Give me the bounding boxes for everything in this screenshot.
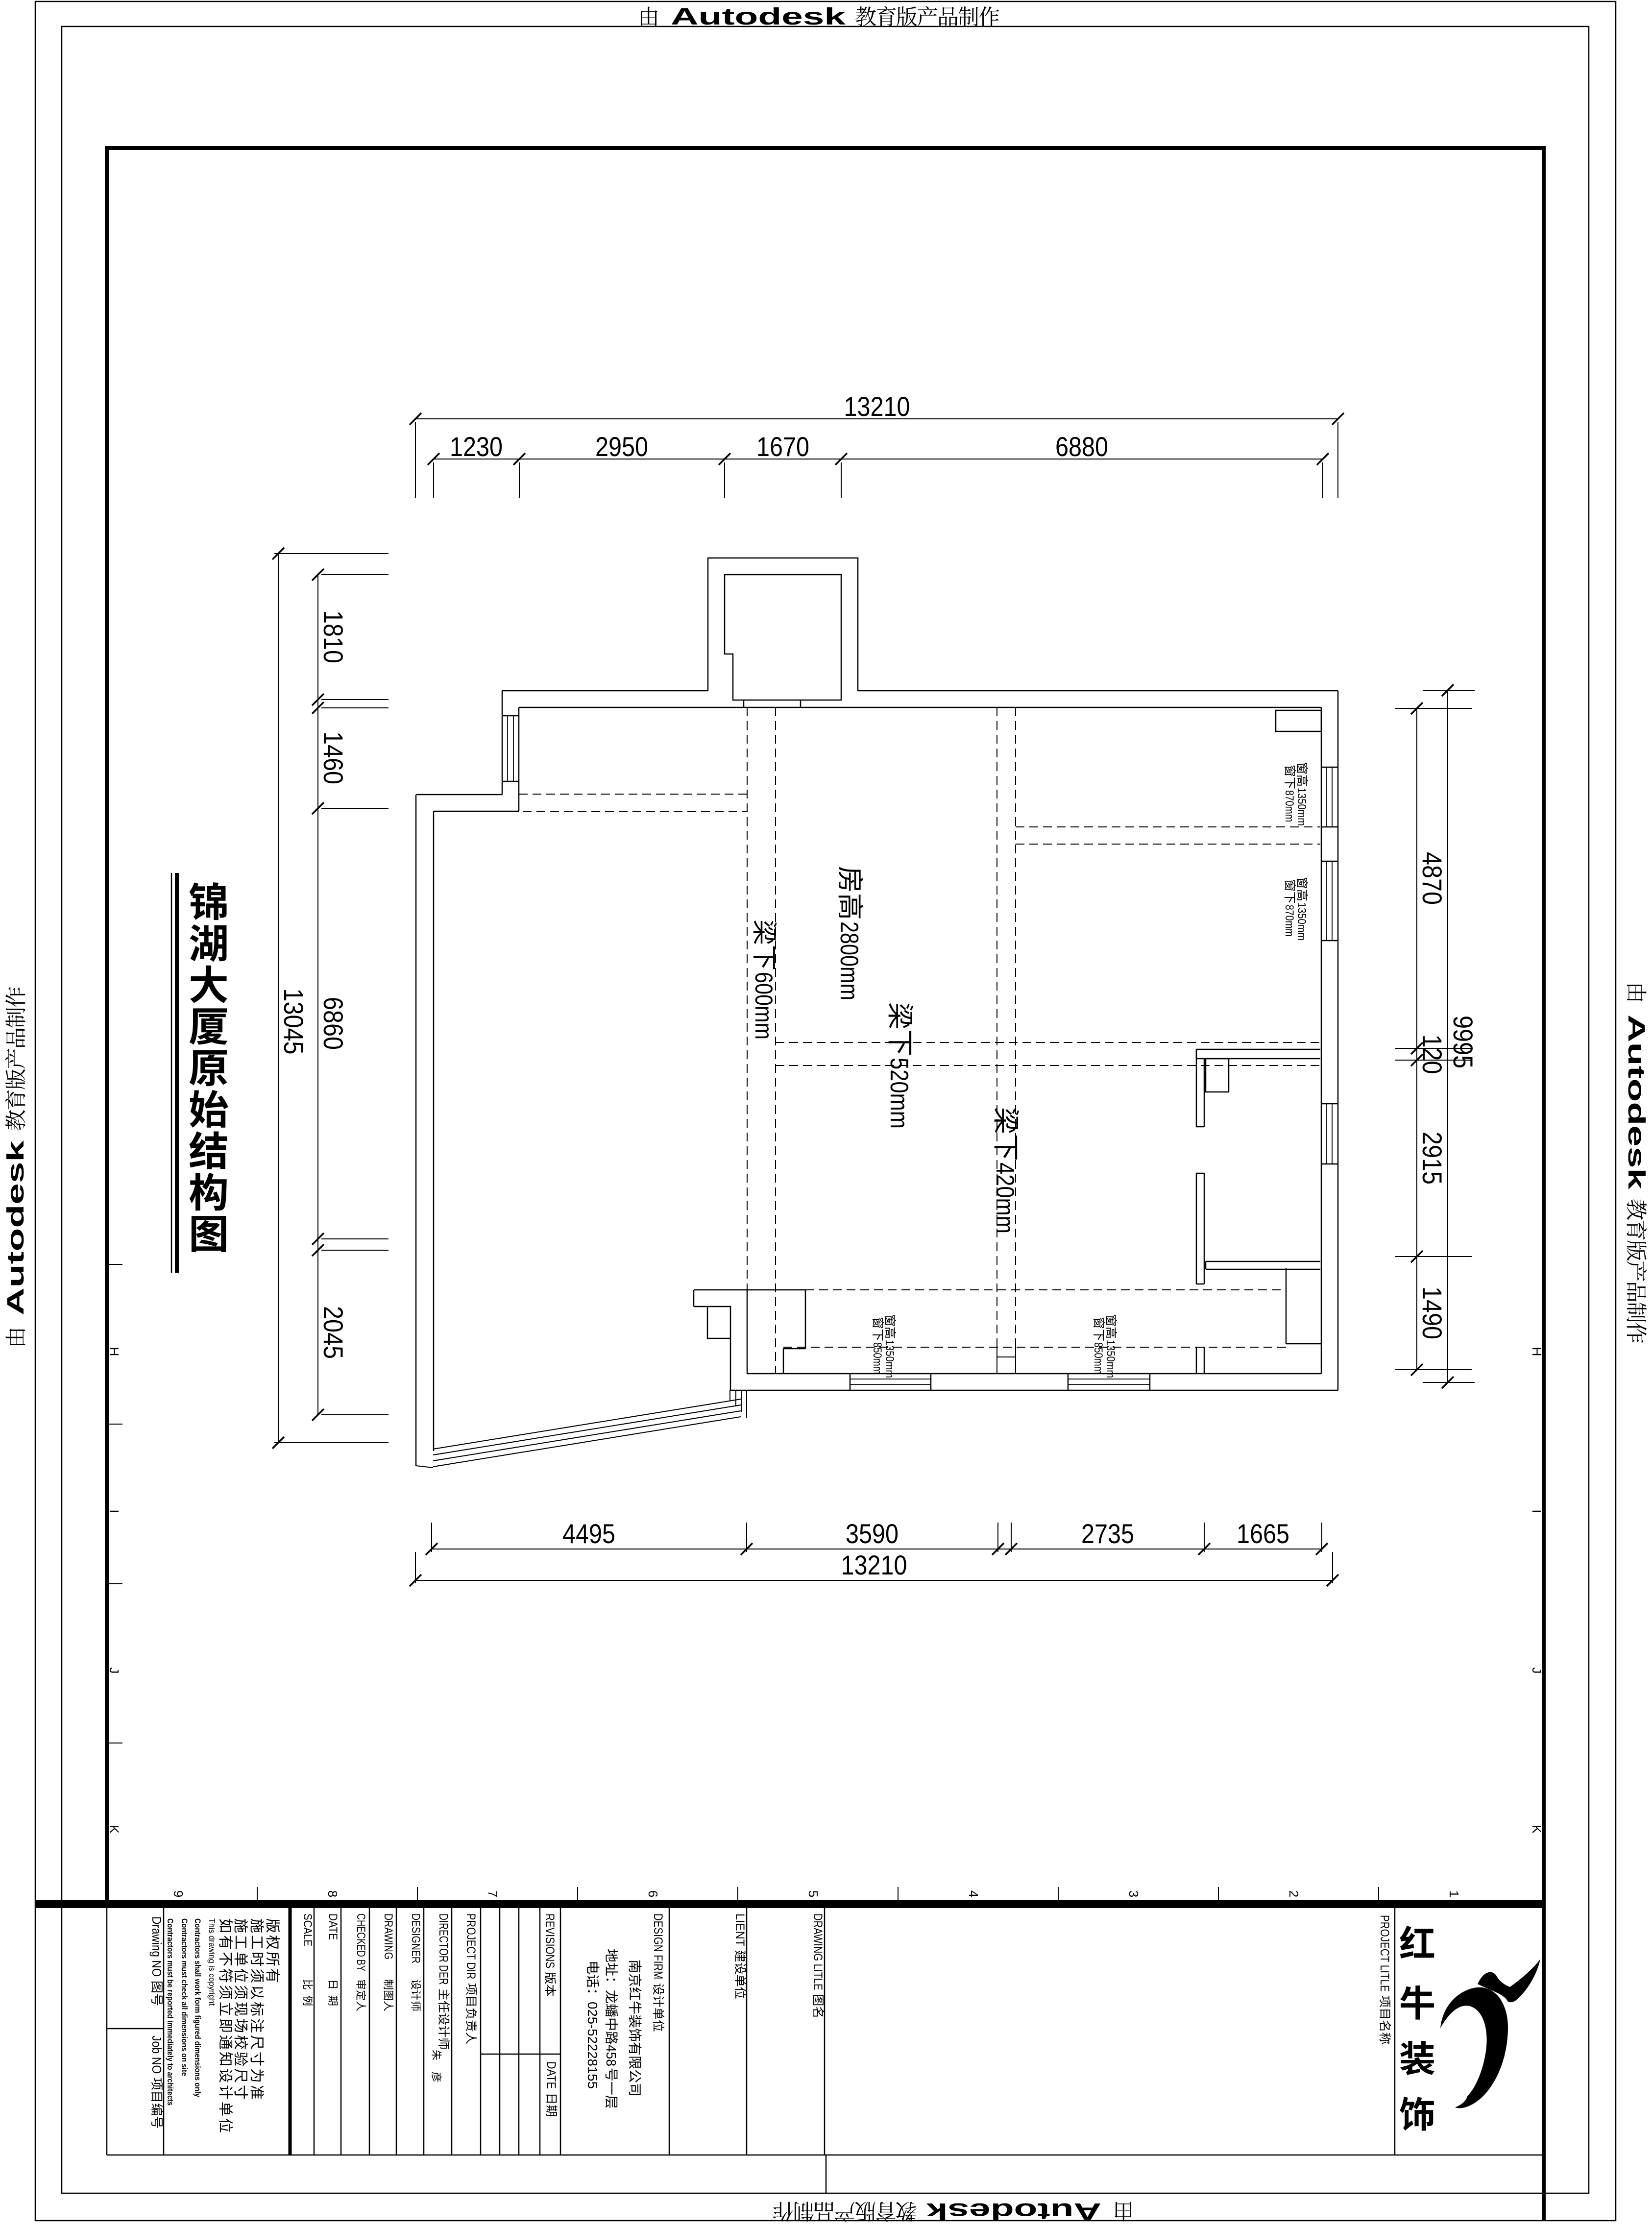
- svg-text:SCALE: SCALE: [301, 1913, 314, 1946]
- svg-text:520mm: 520mm: [885, 1058, 913, 1129]
- svg-text:Contractors must be reported i: Contractors must be reported immediately…: [166, 1918, 175, 2106]
- svg-text:J: J: [1530, 1668, 1544, 1674]
- svg-text:DESIGNER: DESIGNER: [409, 1913, 422, 1963]
- svg-text:1490: 1490: [1417, 1286, 1448, 1339]
- svg-text:K: K: [107, 1825, 121, 1834]
- svg-text:1350mm: 1350mm: [1295, 902, 1308, 941]
- svg-text:K: K: [1530, 1825, 1544, 1834]
- svg-text:7: 7: [486, 1890, 500, 1897]
- svg-text:2950: 2950: [595, 431, 648, 462]
- svg-text:CHECKED BY: CHECKED BY: [354, 1913, 367, 1971]
- svg-text:2800mm: 2800mm: [835, 921, 863, 1000]
- svg-text:850mm: 850mm: [871, 1342, 884, 1374]
- svg-text:Drawing NO: Drawing NO: [149, 1916, 164, 1977]
- svg-text:This drawing is copyright: This drawing is copyright: [207, 1918, 217, 2006]
- svg-text:6880: 6880: [1055, 431, 1108, 462]
- svg-text:Contractors must check all dim: Contractors must check all dimensions on…: [180, 1918, 189, 2076]
- svg-text:REVISIONS: REVISIONS: [543, 1913, 557, 1968]
- svg-text:2915: 2915: [1417, 1132, 1448, 1185]
- svg-text:1670: 1670: [756, 431, 809, 462]
- svg-text:3: 3: [1126, 1890, 1141, 1897]
- svg-text:4870: 4870: [1417, 852, 1448, 905]
- svg-text:Contractors shall work form fi: Contractors shall work form figured dime…: [193, 1918, 202, 2097]
- svg-text:J: J: [107, 1668, 121, 1674]
- svg-text:PROJECT DIR: PROJECT DIR: [464, 1913, 478, 1979]
- svg-text:9: 9: [171, 1890, 186, 1897]
- svg-text:DESIGN FIRM: DESIGN FIRM: [651, 1913, 665, 1979]
- svg-text:DRAWING: DRAWING: [382, 1913, 395, 1960]
- svg-text:4495: 4495: [562, 1518, 615, 1549]
- svg-text:120: 120: [1417, 1035, 1448, 1074]
- svg-text:DATE: DATE: [544, 2061, 558, 2089]
- svg-text:600mm: 600mm: [750, 972, 777, 1040]
- svg-text:1350mm: 1350mm: [1104, 1340, 1117, 1378]
- svg-text:1350mm: 1350mm: [883, 1340, 896, 1378]
- svg-text:6860: 6860: [318, 997, 349, 1050]
- svg-text:3590: 3590: [846, 1518, 899, 1549]
- svg-text:1: 1: [1447, 1890, 1461, 1897]
- svg-text:5: 5: [806, 1890, 821, 1897]
- svg-text:I: I: [107, 1509, 121, 1513]
- svg-text:Job NO: Job NO: [149, 2035, 164, 2074]
- svg-text:Autodesk: Autodesk: [3, 1140, 29, 1315]
- svg-text:13210: 13210: [841, 1549, 907, 1580]
- svg-text:850mm: 850mm: [1092, 1342, 1105, 1374]
- svg-text:PROJECT LITLE: PROJECT LITLE: [1378, 1915, 1391, 1992]
- svg-text:DRAWING LITLE: DRAWING LITLE: [811, 1913, 825, 1990]
- svg-text:DIRECTOR DER: DIRECTOR DER: [437, 1913, 450, 1985]
- svg-text:Autodesk: Autodesk: [1623, 1015, 1649, 1189]
- svg-text:2735: 2735: [1081, 1518, 1134, 1549]
- svg-text:1810: 1810: [318, 610, 349, 663]
- svg-text:1230: 1230: [450, 431, 503, 462]
- svg-text:1460: 1460: [318, 731, 349, 784]
- svg-text:420mm: 420mm: [991, 1162, 1019, 1234]
- svg-text:13045: 13045: [278, 989, 309, 1055]
- svg-text:I: I: [1530, 1509, 1544, 1513]
- svg-text:13210: 13210: [844, 391, 910, 422]
- svg-text:870mm: 870mm: [1283, 905, 1296, 937]
- svg-text:025-52228155: 025-52228155: [585, 2002, 600, 2089]
- svg-text:4: 4: [966, 1890, 981, 1897]
- svg-text:458: 458: [604, 2045, 619, 2066]
- svg-text:H: H: [107, 1347, 121, 1356]
- svg-text:6: 6: [646, 1890, 660, 1897]
- svg-text:2045: 2045: [318, 1306, 349, 1359]
- svg-text:8: 8: [325, 1890, 340, 1897]
- svg-text:LIENT: LIENT: [733, 1913, 747, 1946]
- svg-text:2: 2: [1287, 1890, 1301, 1897]
- svg-text:870mm: 870mm: [1283, 790, 1296, 822]
- svg-text:1350mm: 1350mm: [1295, 788, 1308, 826]
- svg-text:1665: 1665: [1237, 1518, 1289, 1549]
- svg-text:H: H: [1530, 1347, 1544, 1356]
- svg-text:DATE: DATE: [326, 1913, 340, 1940]
